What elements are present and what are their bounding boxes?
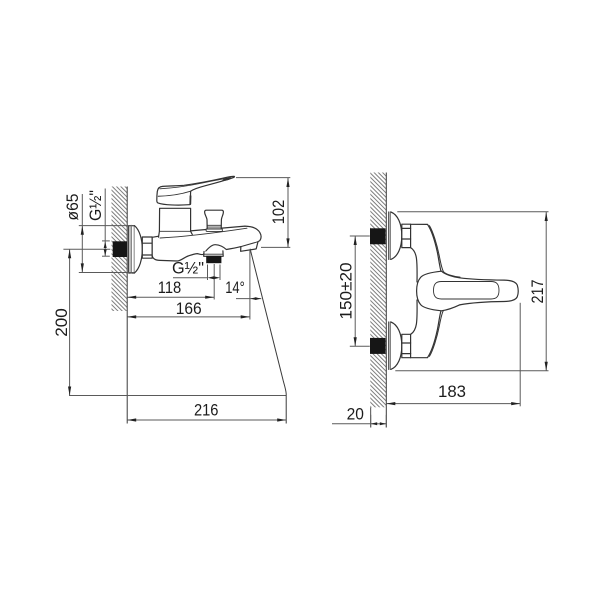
- svg-text:118: 118: [158, 279, 182, 297]
- svg-text:102: 102: [270, 200, 288, 225]
- svg-text:183: 183: [438, 383, 466, 401]
- svg-text:G½": G½": [86, 190, 105, 221]
- svg-text:14°: 14°: [225, 279, 245, 297]
- svg-text:166: 166: [176, 300, 202, 318]
- svg-text:20: 20: [347, 406, 364, 424]
- svg-text:200: 200: [52, 308, 71, 337]
- svg-text:150±20: 150±20: [337, 263, 356, 320]
- svg-text:ø65: ø65: [63, 194, 82, 221]
- svg-text:217: 217: [529, 280, 547, 304]
- svg-text:216: 216: [194, 401, 219, 419]
- svg-text:G½": G½": [172, 260, 204, 278]
